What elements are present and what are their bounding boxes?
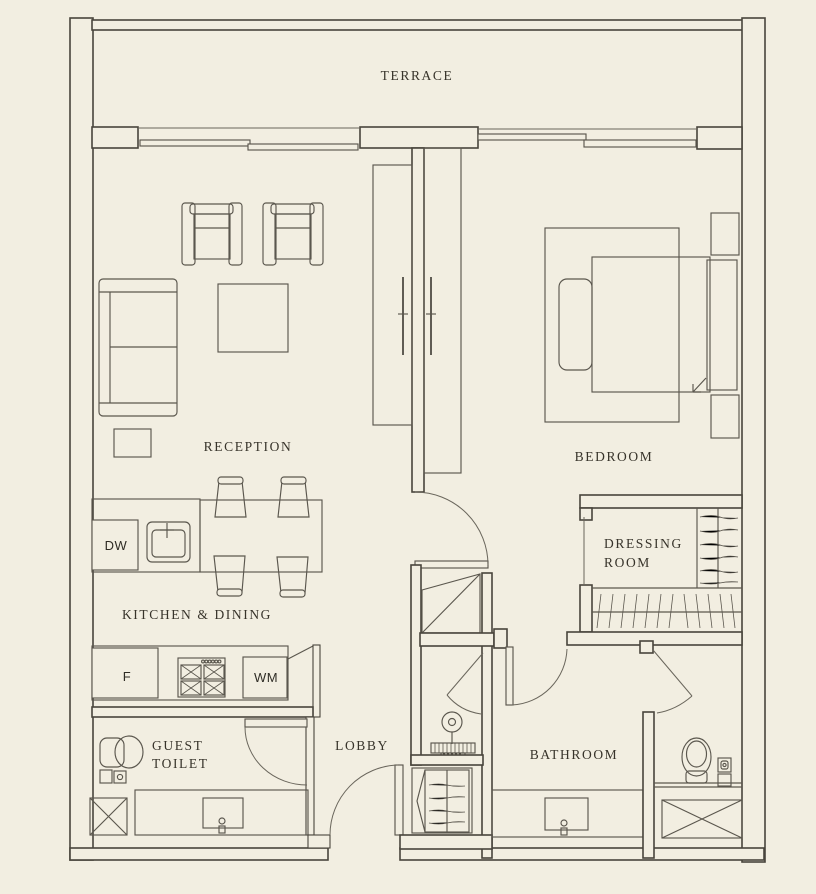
entrance-door-leaf <box>395 765 403 835</box>
service-column <box>400 565 507 858</box>
toilet-accessories <box>100 770 126 783</box>
dressing-top-wall <box>580 495 742 508</box>
armchair-icon <box>263 203 323 265</box>
toilet-icon <box>100 736 143 768</box>
reception-label: RECEPTION <box>204 439 293 454</box>
dining-table-icon <box>200 500 322 572</box>
room-reception: RECEPTION <box>99 203 323 457</box>
dining-chair-icon <box>215 477 246 517</box>
water-heater-icon <box>442 712 462 732</box>
door-leaf-line <box>447 653 483 695</box>
kitchen-dining-label: KITCHEN & DINING <box>122 607 272 622</box>
dining-chair-icon <box>278 477 309 517</box>
wardrobe-panel-bedroom <box>424 148 461 473</box>
shower-tray-icon <box>662 800 742 838</box>
terrace-wall-nub-left <box>92 127 138 148</box>
faucet-icon <box>219 818 225 824</box>
bottom-wall-left <box>70 848 328 860</box>
wall-nub <box>640 641 653 653</box>
sliding-door-panel <box>478 134 586 140</box>
room-kitchen-dining: KITCHEN & DINING DW F <box>92 477 322 717</box>
burner-icon <box>181 665 224 695</box>
top-wall <box>92 20 744 30</box>
left-wall <box>70 18 93 860</box>
shaft-x-icon <box>90 798 127 835</box>
room-terrace: TERRACE <box>92 68 742 150</box>
room-bathroom: BATHROOM <box>492 641 742 858</box>
floor-plan-svg: TERRACE RECEPTION <box>0 0 816 894</box>
bifold-door-icon <box>417 770 425 832</box>
hanging-rail-icon <box>592 588 742 628</box>
terrace-label: TERRACE <box>381 68 454 83</box>
dressing-label-2: ROOM <box>604 555 651 570</box>
terrace-wall-nub-right <box>697 127 742 149</box>
room-guest-toilet: GUEST TOILET <box>90 707 314 835</box>
sliding-door-panel <box>140 140 250 146</box>
guest-toilet-top-wall <box>92 707 313 717</box>
room-bedroom: BEDROOM <box>545 213 739 464</box>
shaft-left-wall <box>411 565 421 765</box>
faucet-icon <box>561 820 567 826</box>
room-dressing: DRESSING ROOM <box>567 495 742 645</box>
headboard-icon <box>707 260 737 390</box>
wall-nub <box>494 629 507 648</box>
door-leaf <box>506 647 513 705</box>
bathroom-vanity <box>492 790 643 837</box>
washing-machine-label: WM <box>254 670 278 685</box>
terrace-wall-center <box>360 127 478 148</box>
vanity-counter <box>135 790 308 835</box>
bed-icon <box>592 257 710 392</box>
dressing-left-wall <box>580 585 592 632</box>
bathroom-label: BATHROOM <box>530 747 619 762</box>
sliding-door-panel <box>584 140 696 147</box>
closet-shelves-icon <box>697 508 738 588</box>
door-arc <box>447 695 481 714</box>
lobby-label: LOBBY <box>335 738 389 753</box>
wc-door-arc <box>657 696 692 713</box>
guest-toilet-label-2: TOILET <box>152 756 209 771</box>
fridge-label: F <box>123 669 131 684</box>
dining-chair-icon <box>214 556 245 596</box>
side-table-icon <box>114 429 151 457</box>
entrance-door-arc <box>330 765 398 835</box>
wall-segment <box>411 755 483 765</box>
sliding-door-panel <box>248 144 358 150</box>
lobby-closet-icon <box>412 768 472 833</box>
nightstand-icon <box>711 395 739 438</box>
floor-plan: TERRACE RECEPTION <box>0 0 816 894</box>
pillow-icon <box>559 279 592 370</box>
wc-door-leaf <box>653 650 692 696</box>
guest-toilet-label-1: GUEST <box>152 738 204 753</box>
dining-chair-icon <box>277 557 308 597</box>
door-leaf <box>415 561 488 568</box>
guest-toilet-side-wall <box>306 717 314 835</box>
bedroom-label: BEDROOM <box>575 449 654 464</box>
partition-wall <box>412 148 424 492</box>
door-leaf <box>245 719 307 727</box>
dishwasher-label: DW <box>105 538 128 553</box>
dressing-left-wall-stub <box>580 508 592 520</box>
stove-icon <box>178 658 225 697</box>
wardrobe-panel-reception <box>373 165 412 425</box>
sofa-icon <box>99 279 177 416</box>
wc-toilet-icon <box>682 738 711 783</box>
door-arc <box>245 727 307 785</box>
room-lobby: LOBBY <box>308 738 403 848</box>
armchair-icon <box>182 203 242 265</box>
utility-room <box>431 653 483 759</box>
bed-sheet-fold <box>693 378 706 392</box>
shaft-right-wall <box>482 573 492 858</box>
sink-icon <box>147 522 190 562</box>
coffee-table-icon <box>218 284 288 352</box>
wall-segment <box>400 835 492 849</box>
wc-accessories <box>718 758 731 786</box>
central-partition <box>373 148 488 568</box>
stove-knobs <box>202 660 221 663</box>
entrance-jamb <box>308 835 330 848</box>
duct-shaft-icon <box>422 574 480 633</box>
right-wall <box>742 18 765 862</box>
dressing-bottom-wall <box>567 632 742 645</box>
wall-segment <box>420 633 494 646</box>
door-arc <box>512 649 567 705</box>
door-arc <box>415 492 488 565</box>
wc-divider-wall <box>643 712 654 858</box>
dressing-label-1: DRESSING <box>604 536 683 551</box>
nightstand-icon <box>711 213 739 255</box>
